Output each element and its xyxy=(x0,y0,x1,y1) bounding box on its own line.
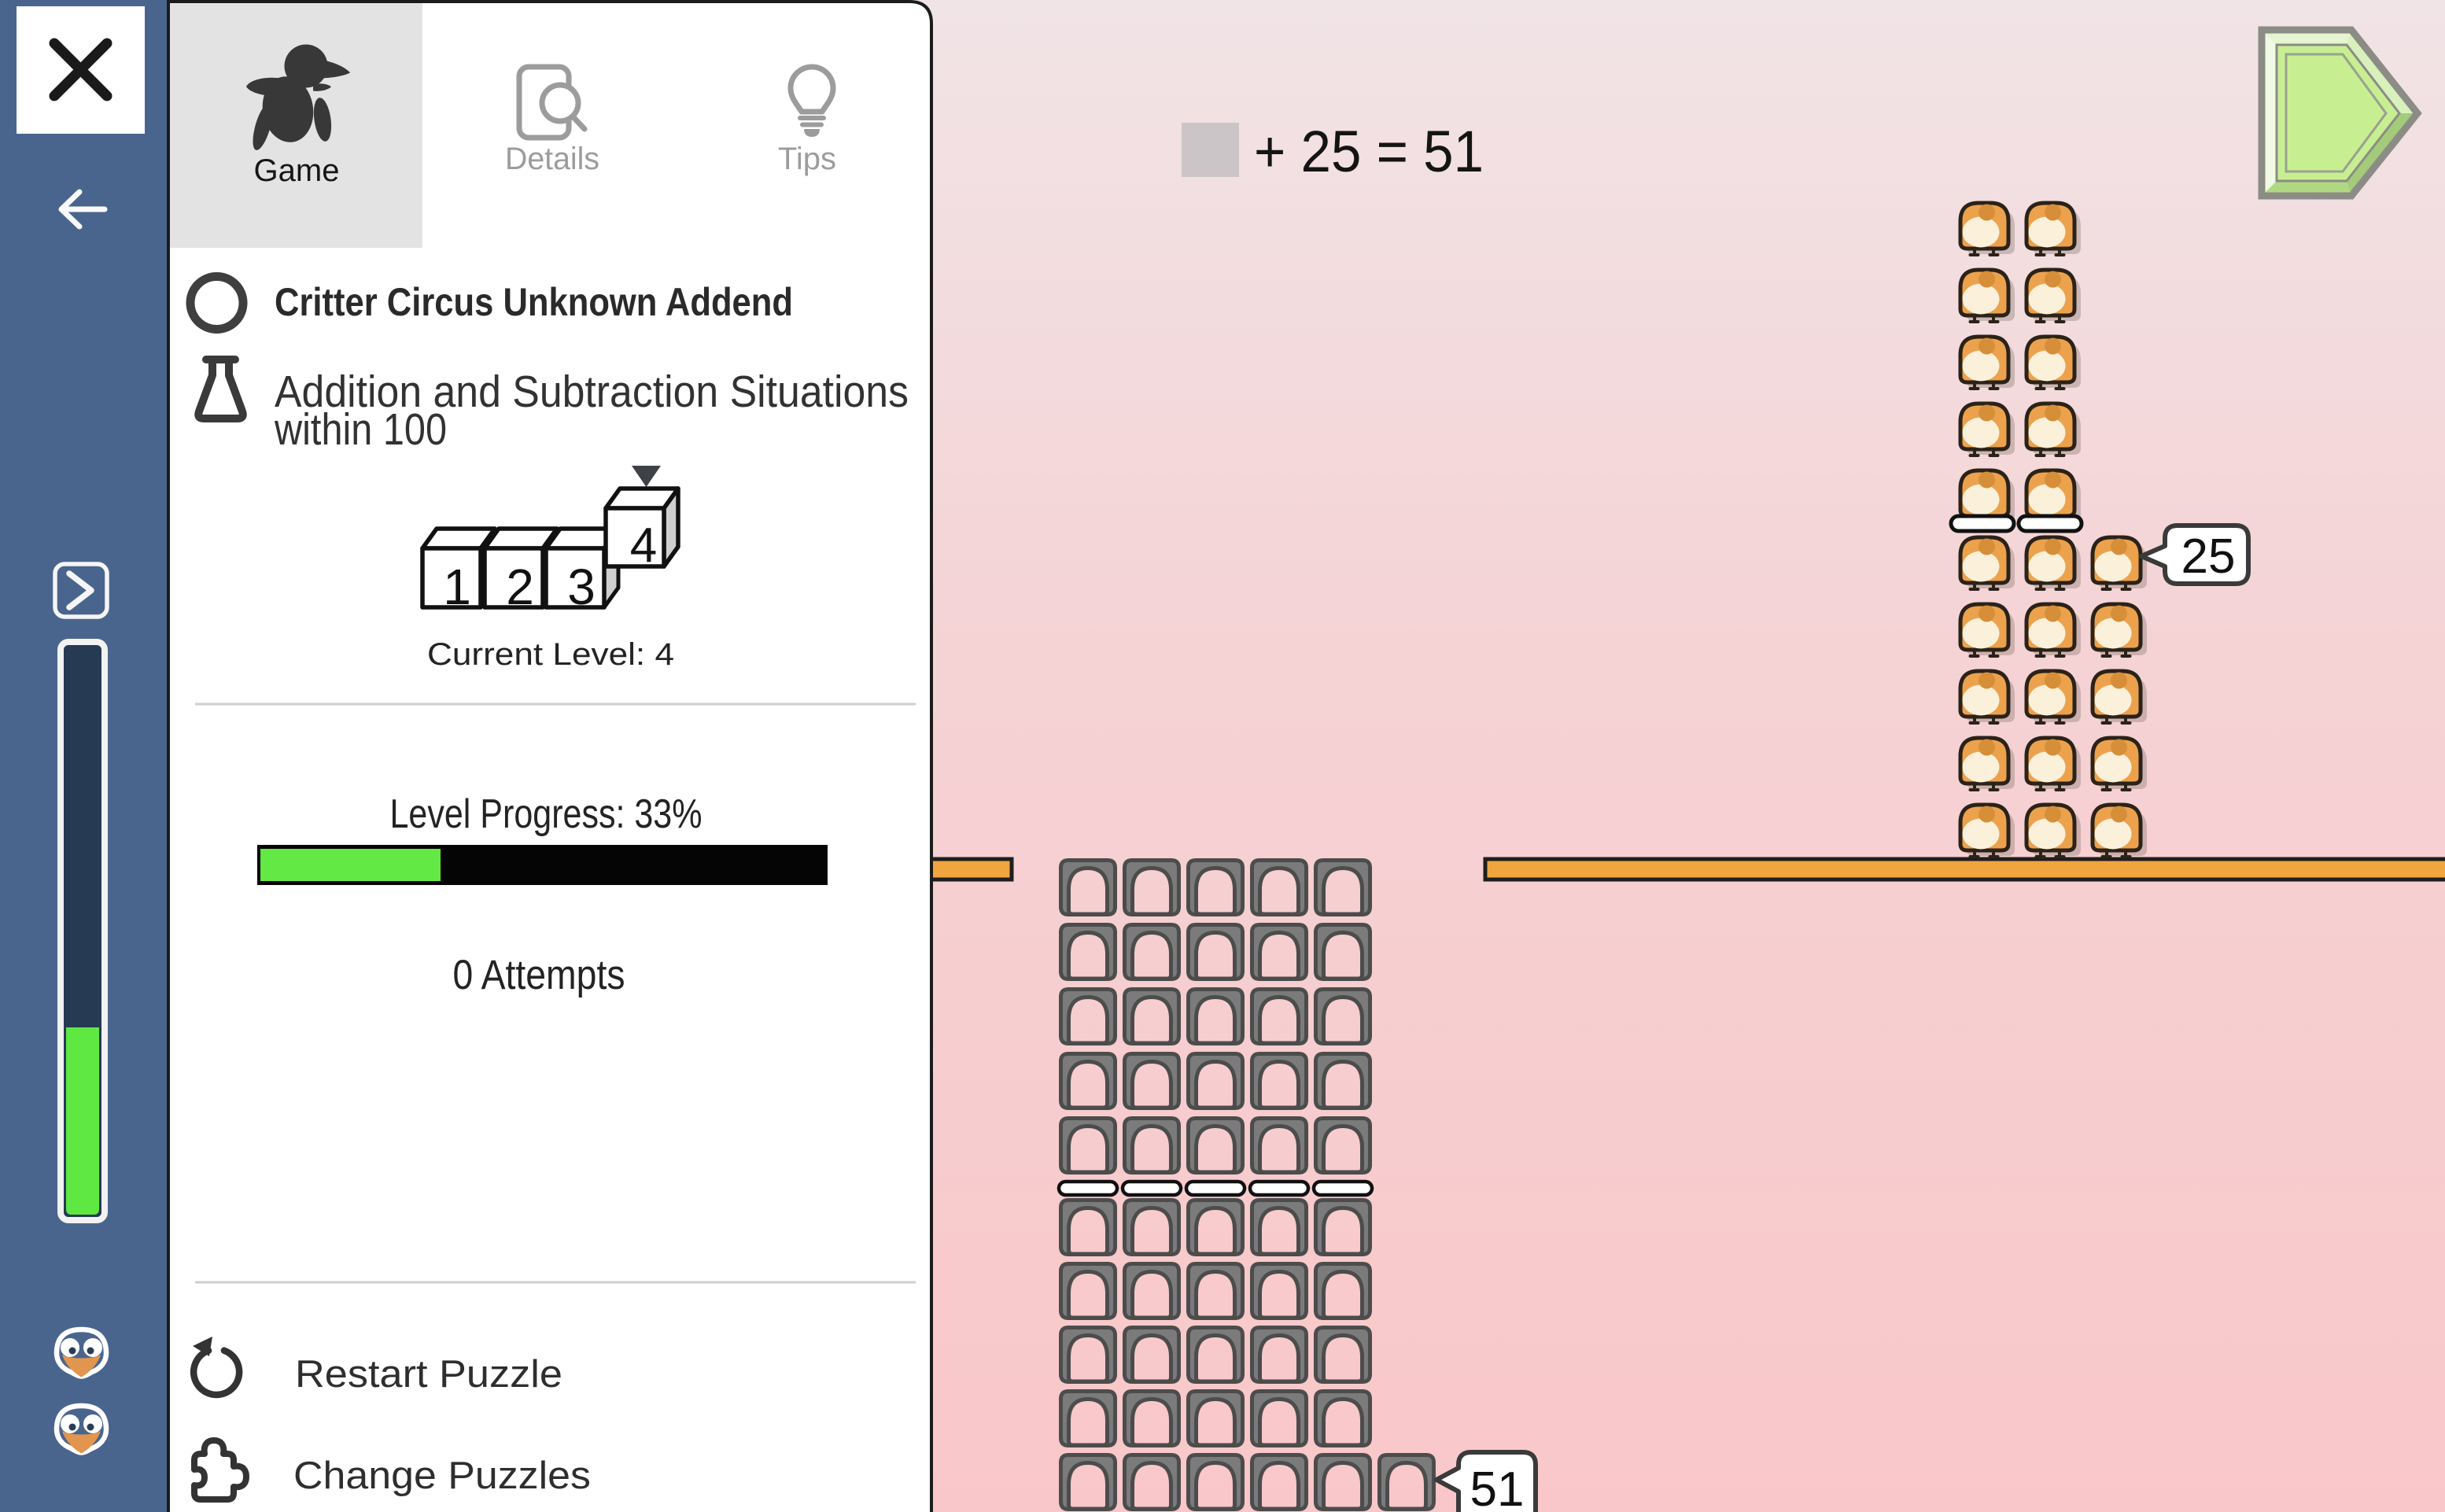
svg-text:Details: Details xyxy=(505,142,599,176)
svg-text:2: 2 xyxy=(506,559,534,615)
svg-text:within 100: within 100 xyxy=(274,404,447,455)
svg-text:25: 25 xyxy=(2181,529,2236,584)
svg-text:4: 4 xyxy=(630,518,657,573)
svg-text:0 Attempts: 0 Attempts xyxy=(453,952,625,998)
svg-text:3: 3 xyxy=(567,559,596,615)
svg-text:Tips: Tips xyxy=(778,142,836,176)
svg-text:Game: Game xyxy=(254,153,340,188)
svg-text:Critter Circus Unknown Addend: Critter Circus Unknown Addend xyxy=(275,280,793,324)
svg-text:Level Progress: 33%: Level Progress: 33% xyxy=(390,791,703,837)
svg-text:51: 51 xyxy=(1470,1462,1525,1512)
svg-text:1: 1 xyxy=(443,559,471,615)
svg-text:Current Level: 4: Current Level: 4 xyxy=(427,637,674,672)
svg-text:Change Puzzles: Change Puzzles xyxy=(293,1455,591,1497)
svg-text:Restart Puzzle: Restart Puzzle xyxy=(295,1353,562,1396)
svg-text:+ 25 = 51: + 25 = 51 xyxy=(1254,119,1484,184)
